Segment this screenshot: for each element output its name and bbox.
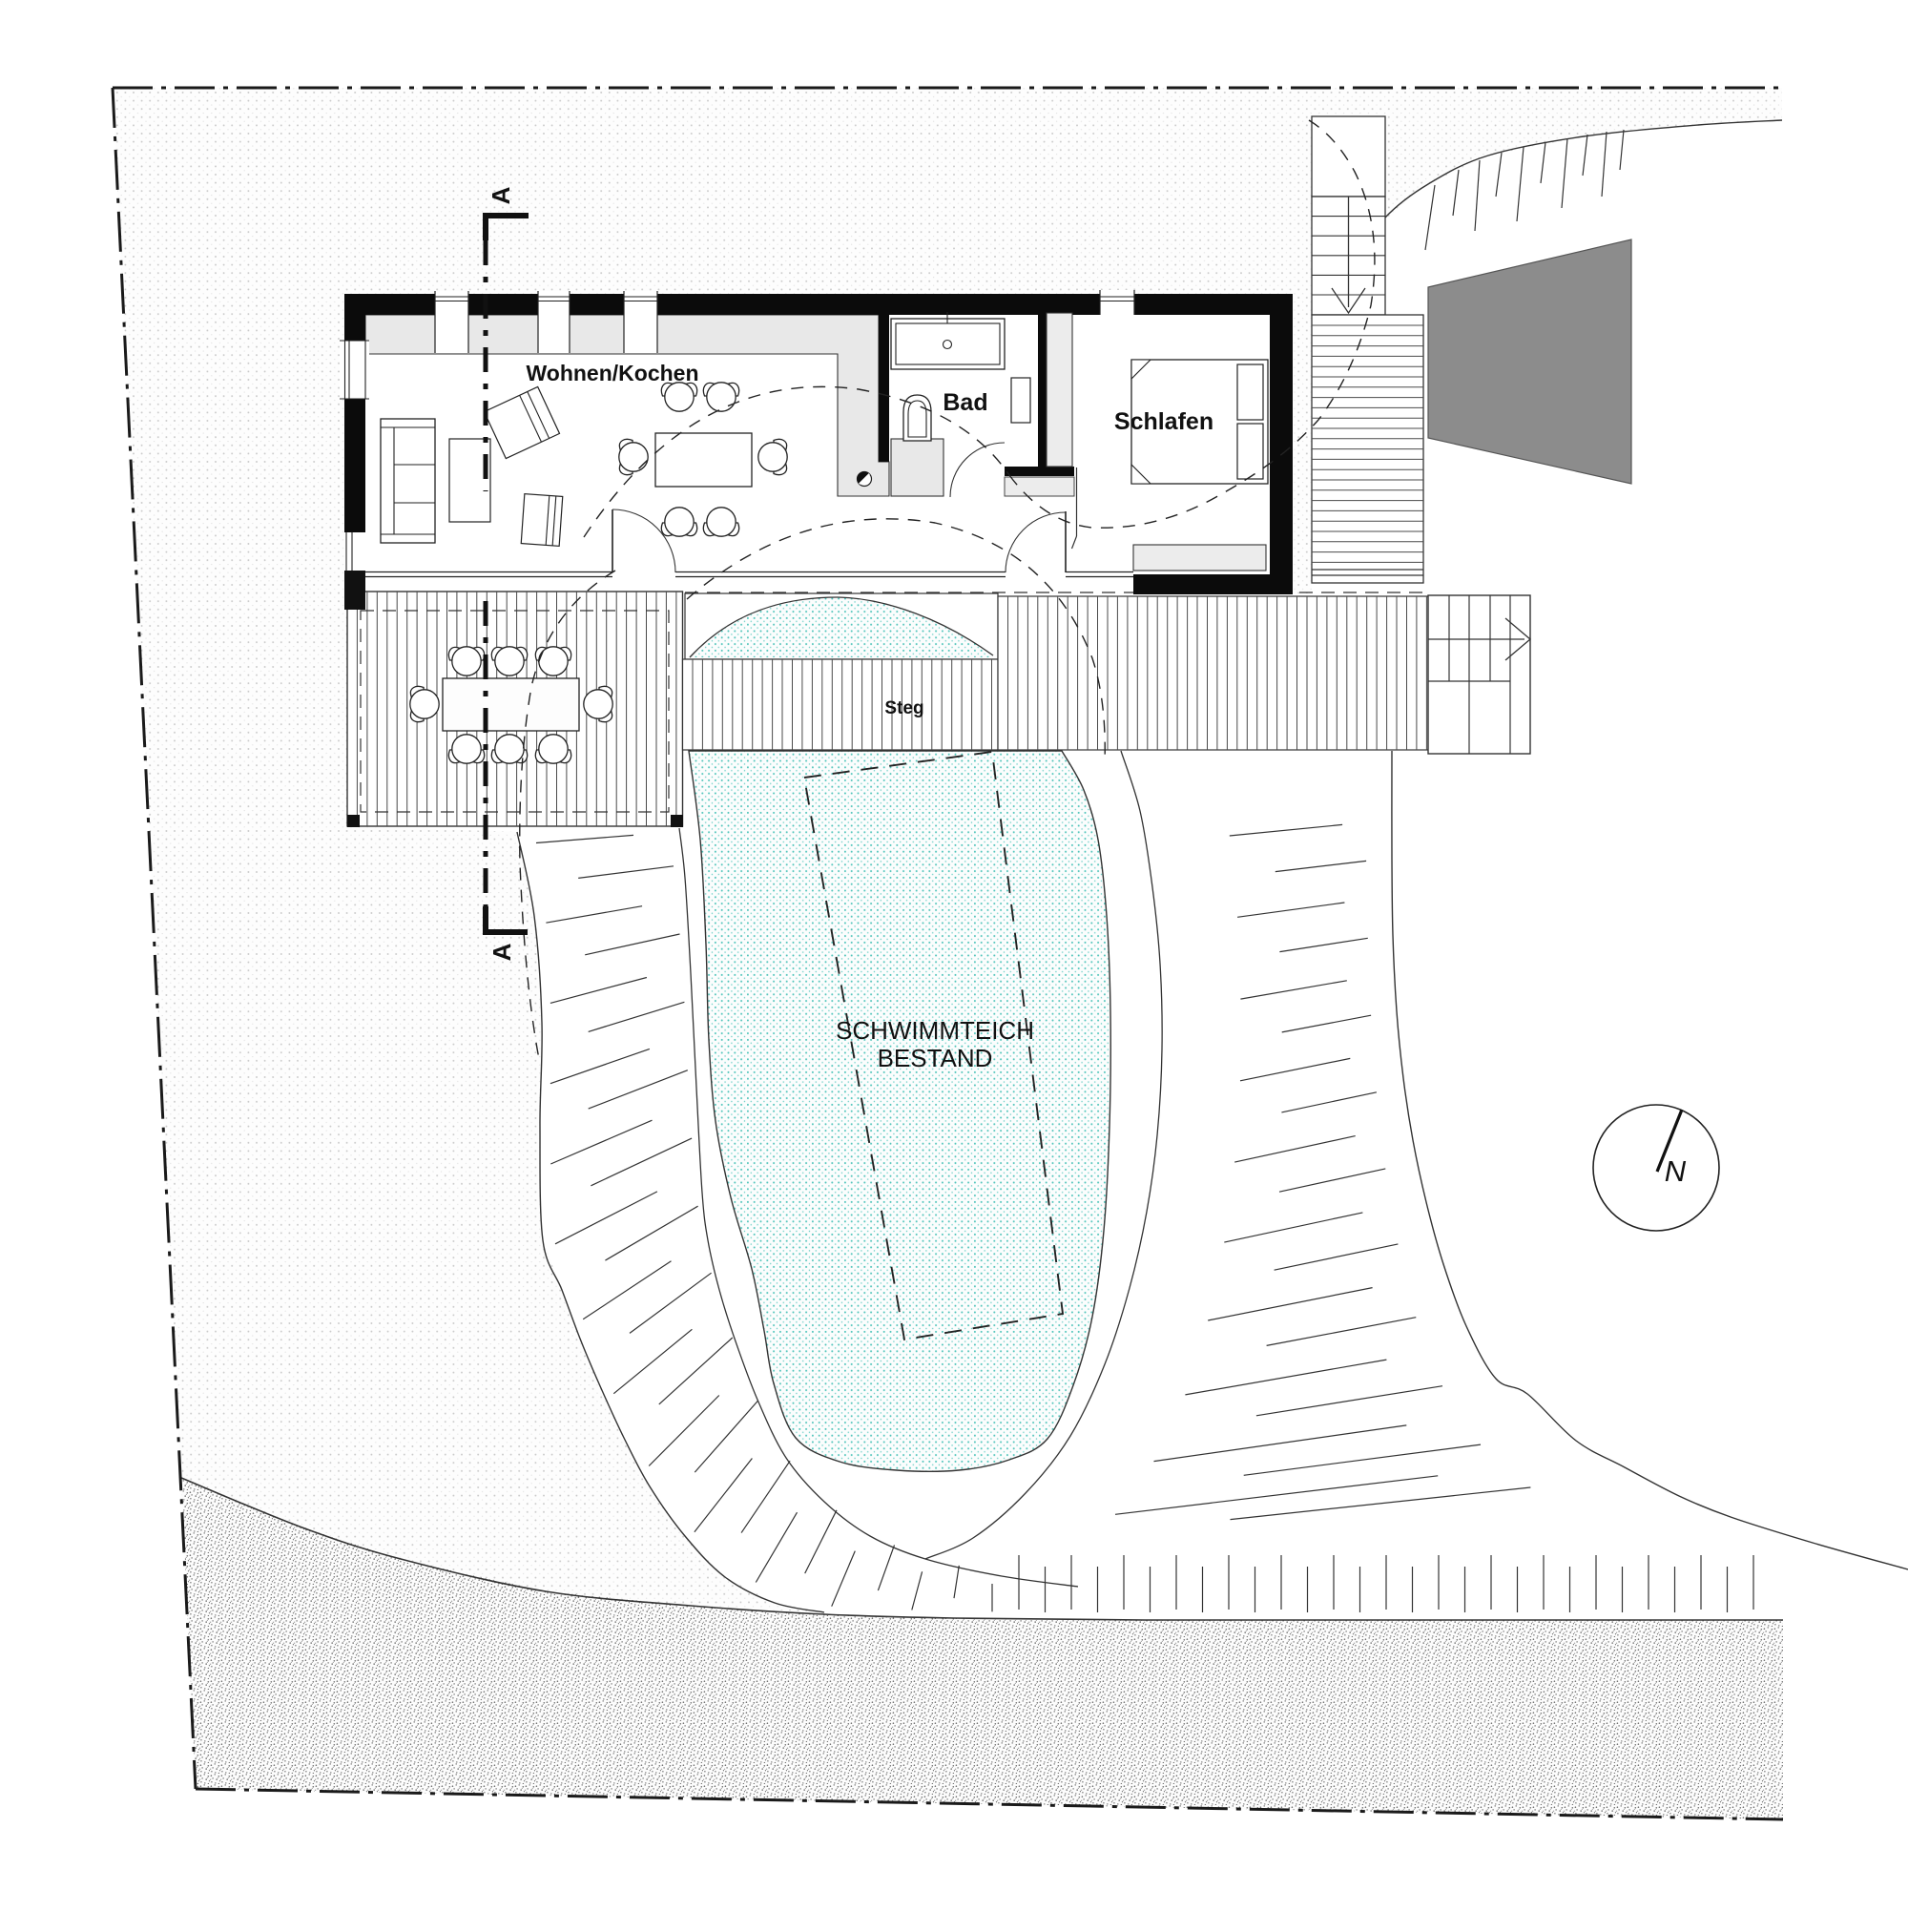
svg-text:N: N xyxy=(1665,1154,1687,1188)
svg-text:A: A xyxy=(487,943,516,961)
svg-text:Steg: Steg xyxy=(884,698,923,718)
svg-text:Wohnen/Kochen: Wohnen/Kochen xyxy=(526,361,698,385)
svg-text:BESTAND: BESTAND xyxy=(878,1044,993,1072)
svg-text:A: A xyxy=(487,186,515,204)
svg-text:Bad: Bad xyxy=(943,389,987,416)
svg-text:Schlafen: Schlafen xyxy=(1114,408,1213,435)
svg-text:SCHWIMMTEICH: SCHWIMMTEICH xyxy=(836,1016,1034,1045)
